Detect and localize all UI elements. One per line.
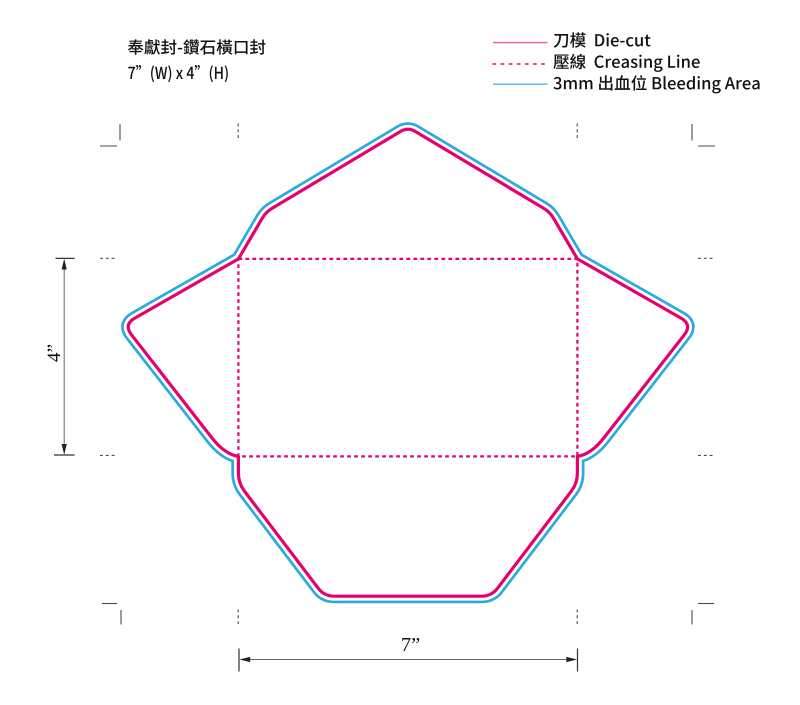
svg-text:4”: 4” [44, 344, 65, 362]
svg-text:7”: 7” [401, 634, 420, 656]
